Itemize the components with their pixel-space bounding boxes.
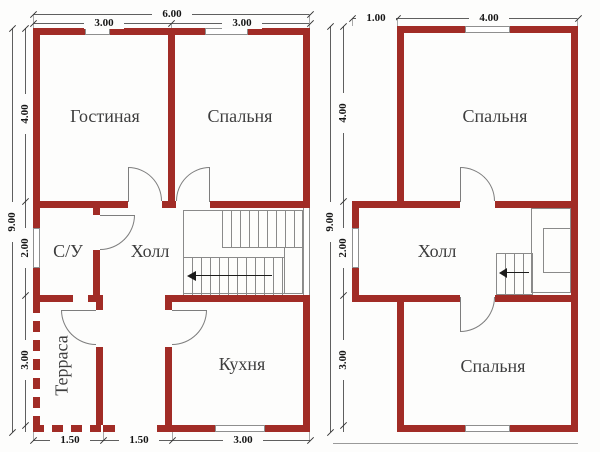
dim-label-height: 9.00: [6, 202, 18, 242]
window: [85, 28, 110, 35]
dim-label-side-top: 4.00: [19, 94, 31, 134]
wall-segment: [397, 425, 465, 432]
stair-treads: [222, 210, 303, 248]
door-leaf: [100, 215, 135, 216]
dim-label-top-right: 4.00: [469, 12, 509, 24]
wall-segment: [110, 28, 205, 35]
wall-segment: [495, 295, 578, 302]
door-leaf: [61, 310, 96, 311]
window: [303, 205, 310, 298]
dim-label-bottom-mid: 1.50: [119, 434, 159, 446]
wall-segment: [303, 298, 310, 432]
door-leaf: [460, 167, 461, 202]
stair-arrow-icon: [187, 271, 196, 281]
dim-tick: [9, 429, 16, 436]
stairs-inner-outline: [543, 228, 571, 273]
door-arc-kitchen: [172, 310, 207, 345]
wall-segment: [210, 201, 310, 208]
stair-treads: [183, 257, 284, 295]
room-label-hall: Холл: [100, 241, 200, 262]
door-leaf: [128, 167, 129, 202]
wall-segment: [571, 26, 578, 432]
wall-segment: [303, 28, 310, 205]
room-label-bathroom: С/У: [38, 241, 98, 262]
door-leaf: [172, 310, 207, 311]
room-label-bedroom-top: Спальня: [435, 106, 555, 127]
door-arc-living: [128, 167, 162, 201]
stair-direction-line: [196, 275, 272, 276]
room-label-kitchen: Кухня: [182, 354, 302, 375]
dimension-line: [333, 443, 578, 444]
dim-label-total-width: 6.00: [152, 8, 192, 20]
floor-plan-canvas: Гостиная Спальня С/У Холл Терраса Кухня …: [0, 0, 600, 452]
wall-segment: [93, 208, 100, 215]
wall-segment: [397, 26, 404, 208]
stair-arrow-icon: [499, 268, 507, 278]
dim-label-side-mid: 2.00: [337, 228, 349, 268]
wall-segment: [165, 347, 172, 425]
dim-tick: [307, 11, 314, 18]
window: [352, 228, 359, 268]
wall-segment: [397, 297, 404, 432]
door-leaf: [209, 167, 210, 202]
wall-segment: [157, 425, 215, 432]
wall-segment: [96, 302, 103, 310]
wall-segment: [33, 201, 128, 208]
room-label-living: Гостиная: [45, 106, 165, 127]
dim-label-side-bottom: 3.00: [337, 340, 349, 380]
dim-label-top-right: 3.00: [222, 17, 262, 29]
wall-segment: [165, 295, 310, 302]
wall-segment: [248, 28, 310, 35]
wall-segment: [352, 295, 460, 302]
dim-label-height: 9.00: [324, 202, 336, 242]
room-label-hall: Холл: [387, 241, 487, 262]
wall-segment: [397, 26, 465, 33]
dim-label-bottom-right: 3.00: [223, 434, 263, 446]
door-arc-bedroom-top: [460, 167, 495, 201]
dim-label-bottom-left: 1.50: [50, 434, 90, 446]
wall-segment: [168, 28, 175, 208]
terrace-open-wall: [33, 425, 103, 432]
dim-label-side-top: 4.00: [337, 93, 349, 133]
door-arc-bedroom: [176, 167, 210, 201]
wall-segment: [352, 201, 460, 208]
door-leaf: [460, 297, 461, 332]
room-label-bedroom-bottom: Спальня: [433, 356, 553, 377]
window: [205, 28, 248, 35]
stair-landing-line: [284, 247, 285, 294]
room-label-terrace: Терраса: [52, 326, 73, 406]
terrace-open-wall: [33, 302, 40, 425]
dim-tick: [575, 15, 582, 22]
wall-segment: [88, 295, 103, 302]
door-arc-bedroom-bottom: [460, 297, 495, 332]
room-label-bedroom: Спальня: [180, 106, 300, 127]
wall-segment: [96, 347, 103, 425]
dim-tick: [327, 429, 334, 436]
wall-segment: [510, 425, 578, 432]
wall-segment: [33, 295, 73, 302]
window: [465, 26, 510, 33]
wall-segment: [33, 28, 85, 35]
window: [215, 425, 265, 432]
dim-label-top-left: 3.00: [84, 17, 124, 29]
wall-segment: [165, 302, 172, 310]
dim-label-top-left: 1.00: [356, 12, 396, 24]
wall-segment: [33, 28, 40, 228]
window: [465, 425, 510, 432]
wall-segment: [510, 26, 578, 33]
wall-segment: [495, 201, 578, 208]
dim-label-side-bottom: 3.00: [19, 340, 31, 380]
dim-label-side-mid: 2.00: [19, 228, 31, 268]
wall-segment: [162, 201, 176, 208]
wall-segment: [103, 425, 115, 432]
